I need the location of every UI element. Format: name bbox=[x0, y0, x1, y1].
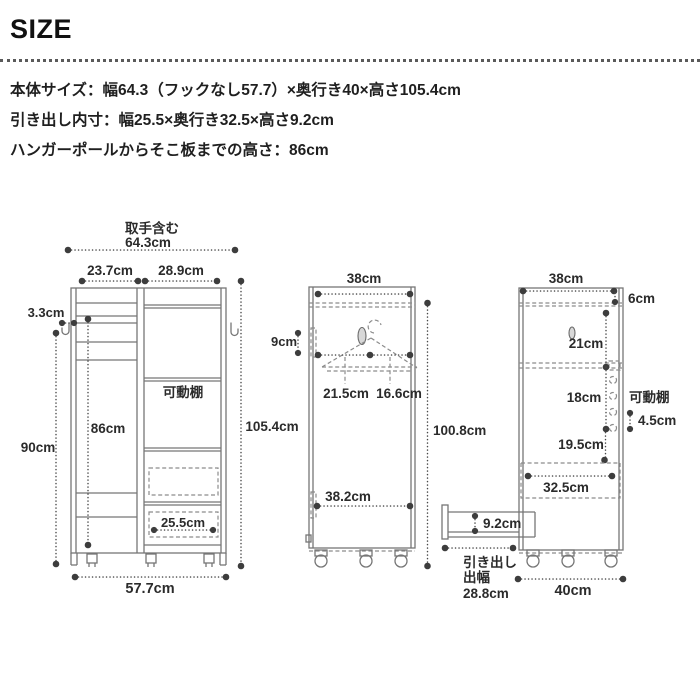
front-shelf-label: 可動棚 bbox=[163, 384, 204, 400]
shelf-pin-holes bbox=[610, 377, 617, 432]
dim-drawer-inner-height: 9.2cm bbox=[472, 513, 521, 534]
dim-inner-depth: 38.2cm bbox=[314, 489, 414, 509]
shelf-depth-label: 38cm bbox=[549, 271, 584, 286]
dim-drawer-extension: 引き出し 出幅 28.8cm bbox=[442, 545, 517, 601]
dim-section-middle: 18cm bbox=[567, 367, 610, 432]
side-view-hanger: 38cm 9cm bbox=[271, 271, 486, 569]
dim-section-upper: 21cm bbox=[569, 310, 610, 371]
hole-pitch-label: 4.5cm bbox=[638, 413, 676, 428]
dim-section-lower: 19.5cm bbox=[558, 429, 608, 463]
pole-to-back-label: 16.6cm bbox=[376, 386, 422, 401]
dim-drawer-depth: 32.5cm bbox=[521, 463, 620, 498]
dim-side-height: 90cm bbox=[21, 330, 60, 568]
dim-pole-to-base: 86cm bbox=[85, 316, 126, 549]
right-hook-icon bbox=[231, 323, 238, 336]
hanger-casters bbox=[315, 550, 407, 567]
dim-pole-position: 21.5cm 16.6cm bbox=[315, 352, 422, 401]
dim-total-height: 105.4cm bbox=[238, 278, 299, 570]
total-height-label: 105.4cm bbox=[245, 419, 298, 434]
drawer-ext-label-1: 引き出し bbox=[463, 554, 517, 570]
dim-hook-depth: 3.3cm bbox=[28, 305, 78, 326]
left-width-label: 23.7cm bbox=[87, 263, 133, 278]
total-depth-label: 40cm bbox=[554, 583, 591, 599]
hanger-cabinet-outline bbox=[306, 287, 415, 551]
front-feet-icons bbox=[87, 554, 214, 567]
caster-icon bbox=[360, 550, 372, 567]
dim-hole-pitch: 4.5cm bbox=[627, 410, 676, 432]
section-lower-label: 19.5cm bbox=[558, 437, 604, 452]
drawer-ext-label-2: 出幅 bbox=[463, 569, 490, 585]
top-gap-label: 6cm bbox=[628, 291, 655, 306]
front-to-pole-label: 21.5cm bbox=[323, 386, 369, 401]
pole-drop-label: 9cm bbox=[271, 334, 297, 349]
dim-total-width: 取手含む 64.3cm bbox=[65, 220, 239, 253]
dim-drawer-width: 25.5cm bbox=[151, 515, 216, 533]
section-middle-label: 18cm bbox=[567, 390, 602, 405]
caster-icon bbox=[395, 550, 407, 567]
dimension-drawings: 取手含む 64.3cm 23.7cm 28.9cm 3.3cm bbox=[0, 0, 700, 700]
dim-total-depth: 40cm bbox=[515, 576, 627, 599]
dim-depth-top-2: 38cm bbox=[520, 271, 618, 294]
foot-icon bbox=[204, 554, 214, 567]
total-width-label: 64.3cm bbox=[125, 235, 171, 250]
dim-section-widths: 23.7cm 28.9cm bbox=[79, 263, 221, 284]
hook-depth-label: 3.3cm bbox=[28, 305, 65, 320]
foot-icon bbox=[87, 554, 97, 567]
pole-to-base-label: 86cm bbox=[91, 421, 126, 436]
side-height-label: 90cm bbox=[21, 440, 56, 455]
dim-body-width: 57.7cm bbox=[72, 574, 230, 597]
front-view: 取手含む 64.3cm 23.7cm 28.9cm 3.3cm bbox=[21, 220, 299, 597]
inner-height-label: 100.8cm bbox=[433, 423, 486, 438]
dim-depth-top: 38cm bbox=[315, 271, 414, 297]
dim-pole-drop: 9cm bbox=[271, 330, 301, 356]
foot-icon bbox=[146, 554, 156, 567]
inner-depth-label: 38.2cm bbox=[325, 489, 371, 504]
shelf-label: 可動棚 bbox=[629, 389, 670, 405]
drawer-width-label: 25.5cm bbox=[161, 515, 205, 530]
handle-note-label: 取手含む bbox=[125, 220, 179, 236]
drawer-depth-label: 32.5cm bbox=[543, 480, 589, 495]
drawer-ext-value: 28.8cm bbox=[463, 586, 509, 601]
hanger-icon bbox=[322, 320, 417, 371]
size-diagram-page: SIZE 本体サイズ：幅64.3（フックなし57.7）×奥行き40×高さ105.… bbox=[0, 0, 700, 700]
caster-icon bbox=[315, 550, 327, 567]
drawer-inner-height-label: 9.2cm bbox=[483, 516, 521, 531]
section-upper-label: 21cm bbox=[569, 336, 604, 351]
right-width-label: 28.9cm bbox=[158, 263, 204, 278]
hanger-depth-label: 38cm bbox=[347, 271, 382, 286]
body-width-label: 57.7cm bbox=[125, 581, 174, 597]
